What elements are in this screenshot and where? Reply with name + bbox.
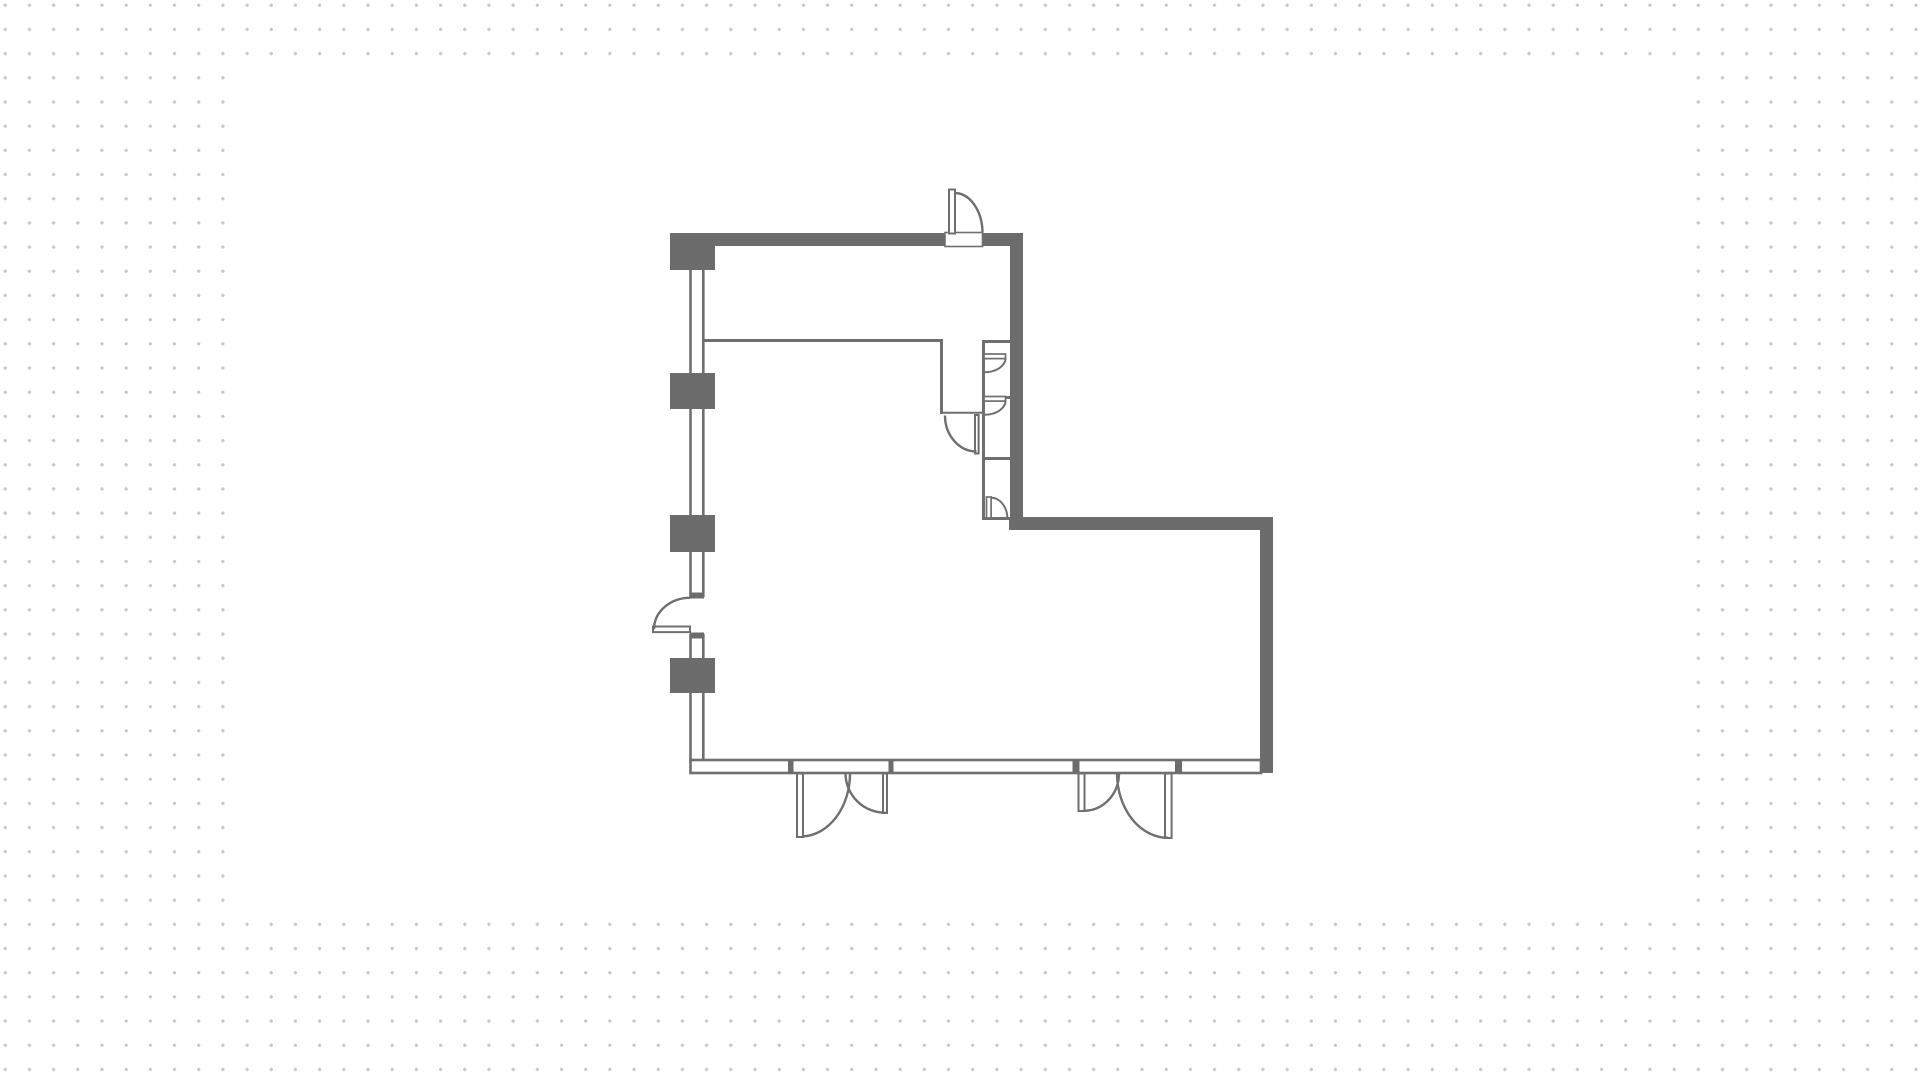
canvas-artboard[interactable]	[230, 62, 1688, 909]
